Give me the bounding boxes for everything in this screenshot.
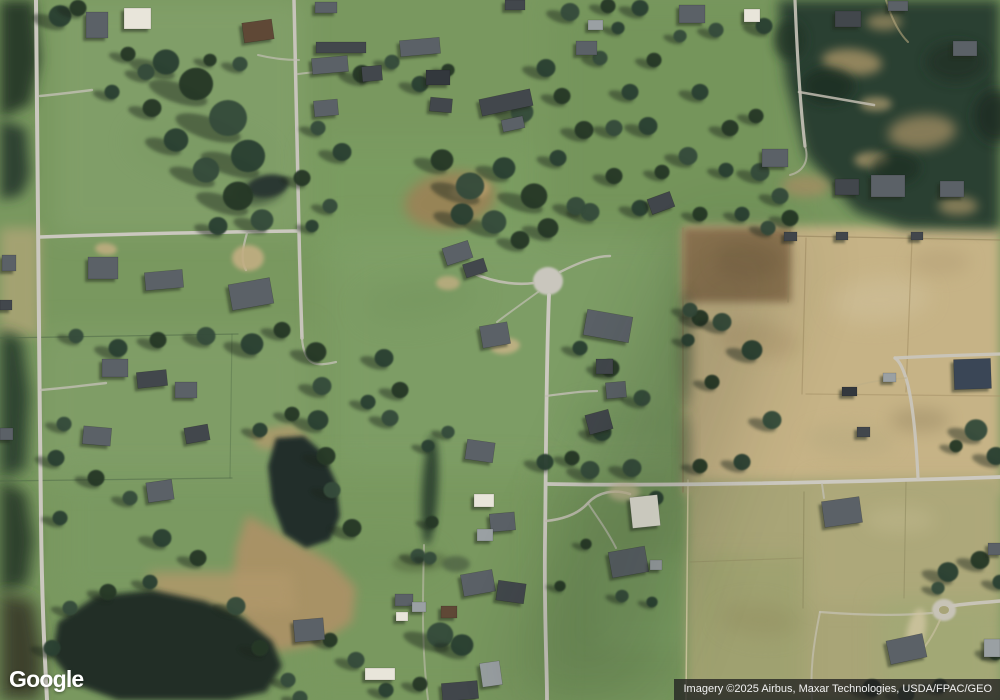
- satellite-imagery-canvas[interactable]: [0, 0, 1000, 700]
- map-viewport[interactable]: Google Imagery ©2025 Airbus, Maxar Techn…: [0, 0, 1000, 700]
- google-logo[interactable]: Google: [9, 666, 83, 693]
- attribution-text: Imagery ©2025 Airbus, Maxar Technologies…: [684, 683, 993, 695]
- attribution-bar: Imagery ©2025 Airbus, Maxar Technologies…: [674, 679, 1000, 700]
